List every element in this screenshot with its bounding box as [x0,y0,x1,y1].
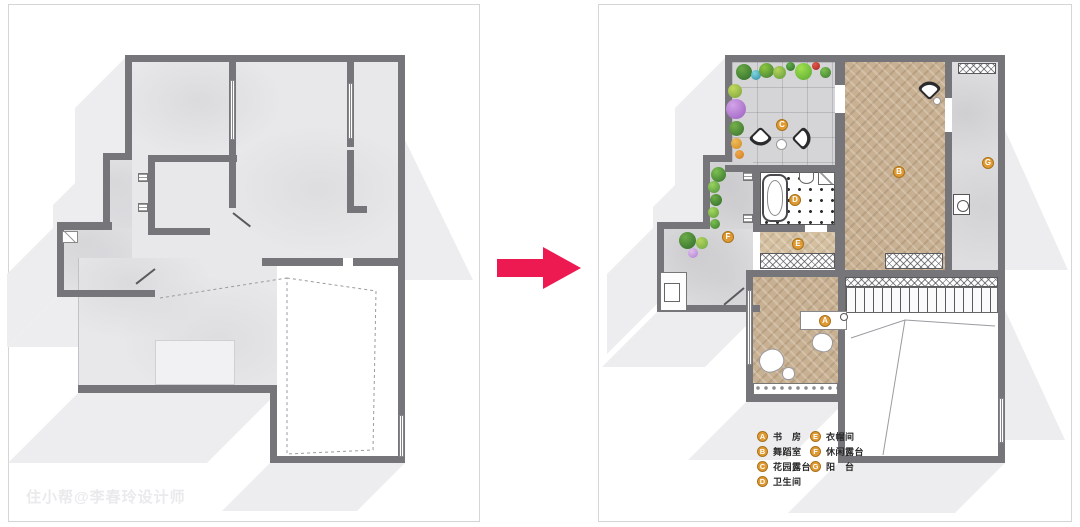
legend-item: G 阳 台 [810,461,864,472]
wardrobe-icon [885,253,943,269]
legend-badge: E [810,431,821,442]
watermark: 住小帮@李春玲设计师 [26,486,186,507]
shadow [1005,310,1065,440]
legend-item: D 卫生间 [757,476,811,487]
legend-label: 休闲露台 [826,445,864,458]
wall [945,62,952,98]
wall [835,113,845,277]
room-label-balcony: G [982,157,994,169]
vent-icon [743,214,753,223]
legend-label: 书 房 [773,430,802,443]
shower-icon [818,172,835,185]
plant-icon [728,84,742,98]
wall [753,225,805,232]
legend-item: E 衣帽间 [810,431,864,442]
sink-icon [664,283,680,302]
plant-icon [708,181,720,193]
plant-icon [708,207,719,218]
room-label-garden-terrace: C [776,119,788,131]
vent-icon [743,172,753,181]
plant-icon [726,99,746,119]
legend-badge: A [757,431,768,442]
wall [835,62,845,85]
room-label-study: A [819,315,831,327]
wall [703,155,710,229]
wall [746,270,1005,277]
plant-icon [735,150,744,159]
bathtub-icon [762,174,788,222]
legend-badge: F [810,446,821,457]
plant-icon [773,66,786,79]
legend-item: A 书 房 [757,431,811,442]
window-hatch-icon [958,63,996,74]
wall [945,132,952,270]
plant-icon [731,138,742,149]
room-label-cloakroom: E [792,238,804,250]
plant-icon [710,219,720,229]
side-table-icon [776,139,787,150]
legend-column: A 书 房 B 舞蹈室 C 花园露台 D 卫生间 [757,431,811,491]
plant-icon [759,63,774,78]
legend-item: C 花园露台 [757,461,811,472]
wall [746,395,845,402]
legend-label: 舞蹈室 [773,445,802,458]
room-label-dance-room: B [893,166,905,178]
plant-icon [711,167,726,182]
wardrobe-icon [760,253,835,269]
window-icon [747,290,752,365]
plant-icon [729,121,744,136]
legend-badge: G [810,461,821,472]
washer-icon [953,194,970,215]
toilet-icon [799,172,814,184]
plant-icon [710,194,722,206]
stair-railing-icon [845,287,998,313]
plant-icon [696,237,708,249]
stool-icon [933,97,941,105]
wall [753,165,760,232]
plant-icon [786,62,795,71]
wall [725,165,845,172]
plant-icon [688,248,698,258]
legend-badge: B [757,446,768,457]
plant-icon [820,67,831,78]
legend-item: F 休闲露台 [810,446,864,457]
plant-icon [812,62,820,70]
before-after-floorplan-image: A B C D E F G A 书 房 B 舞蹈室 C 花园露台 D 卫生间 [0,0,1080,527]
wall [725,55,1005,62]
room-label-bathroom: D [789,194,801,206]
window-icon [999,398,1004,443]
plant-icon [679,232,696,249]
wall [657,222,710,229]
ottoman-icon [782,367,795,380]
cabinet-band-icon [845,277,998,287]
legend-label: 阳 台 [826,460,855,473]
legend-label: 衣帽间 [826,430,855,443]
legend-label: 卫生间 [773,475,802,488]
legend-item: B 舞蹈室 [757,446,811,457]
shadow [1005,130,1068,270]
legend-badge: C [757,461,768,472]
plant-icon [736,64,752,80]
roof-outline-shape [851,320,995,338]
plant-icon [795,63,812,80]
legend: A 书 房 B 舞蹈室 C 花园露台 D 卫生间 E 衣帽间 F [757,431,937,501]
desk-lamp-icon [840,313,848,321]
legend-column: E 衣帽间 F 休闲露台 G 阳 台 [810,431,864,476]
window-seat-icon [753,383,838,395]
legend-badge: D [757,476,768,487]
room-label-leisure-terrace: F [722,231,734,243]
legend-label: 花园露台 [773,460,811,473]
